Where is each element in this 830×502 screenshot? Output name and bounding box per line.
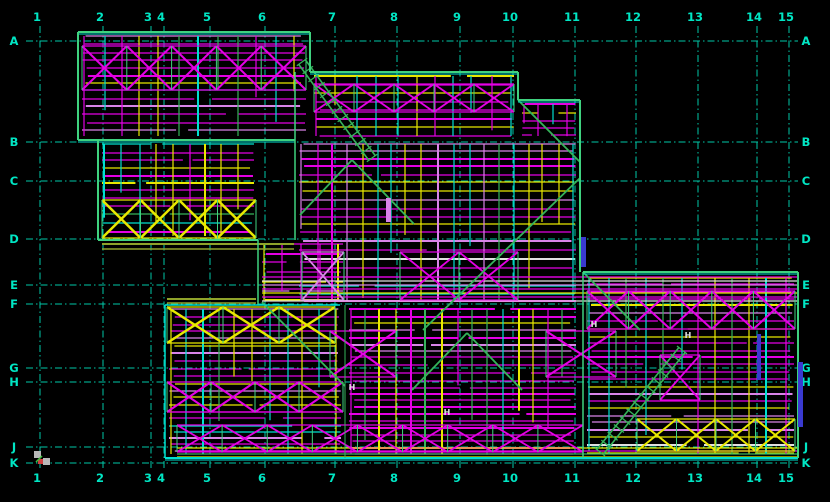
grid-column-label-top: 13 xyxy=(687,10,703,24)
grid-row-label-left: J xyxy=(11,440,16,454)
framing-plan-drawing[interactable]: 1122334455667788991010111112121313141415… xyxy=(0,0,830,502)
framing-zones xyxy=(82,36,794,455)
grid-column-label-top: 3 xyxy=(144,10,152,24)
grid-column-label-top: 9 xyxy=(453,10,461,24)
grid-column-label-bottom: 2 xyxy=(96,471,104,485)
grid-row-label-right: D xyxy=(801,232,811,246)
grid-column-label-top: 1 xyxy=(33,10,41,24)
grid-row-label-left: H xyxy=(9,375,19,389)
holdown-mark: H xyxy=(591,320,598,329)
grid-column-label-top: 4 xyxy=(157,10,165,24)
grid-column-label-bottom: 7 xyxy=(328,471,336,485)
grid-column-label-top: 7 xyxy=(328,10,336,24)
grid-column-label-bottom: 6 xyxy=(258,471,266,485)
grid-row-label-left: C xyxy=(10,174,18,188)
grid-column-label-bottom: 13 xyxy=(687,471,703,485)
holdown-mark: H xyxy=(444,408,451,417)
grid-row-label-left: E xyxy=(10,278,18,292)
grid-column-label-top: 15 xyxy=(778,10,794,24)
grid-column-label-bottom: 9 xyxy=(453,471,461,485)
grid-row-label-left: B xyxy=(10,135,19,149)
grid-column-label-bottom: 5 xyxy=(203,471,211,485)
grid-row-label-right: F xyxy=(802,297,810,311)
grid-column-label-bottom: 10 xyxy=(502,471,518,485)
grid-column-label-top: 5 xyxy=(203,10,211,24)
grid-column-label-bottom: 11 xyxy=(564,471,580,485)
grid-row-label-right: A xyxy=(802,34,811,48)
grid-column-label-top: 6 xyxy=(258,10,266,24)
grid-column-label-top: 12 xyxy=(625,10,641,24)
grid-row-label-left: G xyxy=(9,361,18,375)
grid-row-label-right: E xyxy=(802,278,810,292)
grid-column-label-bottom: 3 xyxy=(144,471,152,485)
roof-diagonals xyxy=(262,58,687,456)
grid-column-label-bottom: 4 xyxy=(157,471,165,485)
grid-column-label-top: 14 xyxy=(746,10,762,24)
grid-row-label-left: D xyxy=(9,232,19,246)
holdown-mark: H xyxy=(685,331,692,340)
grid-column-label-top: 10 xyxy=(502,10,518,24)
grid-column-label-top: 11 xyxy=(564,10,580,24)
holdown-mark: H xyxy=(349,383,356,392)
grid-column-label-top: 2 xyxy=(96,10,104,24)
grid-row-label-left: F xyxy=(10,297,18,311)
grid-row-label-right: C xyxy=(802,174,810,188)
grid-column-label-bottom: 8 xyxy=(390,471,398,485)
grid-column-label-bottom: 15 xyxy=(778,471,794,485)
grid-row-label-left: A xyxy=(10,34,19,48)
grid-column-label-bottom: 14 xyxy=(746,471,762,485)
cad-viewport[interactable]: 1122334455667788991010111112121313141415… xyxy=(0,0,830,502)
grid-column-label-bottom: 12 xyxy=(625,471,641,485)
grid-row-label-right: B xyxy=(802,135,811,149)
grid-row-label-right: J xyxy=(803,440,808,454)
grid-row-label-right: K xyxy=(802,456,812,470)
grid-row-label-left: K xyxy=(10,456,20,470)
grid-column-label-top: 8 xyxy=(390,10,398,24)
grid-column-label-bottom: 1 xyxy=(33,471,41,485)
